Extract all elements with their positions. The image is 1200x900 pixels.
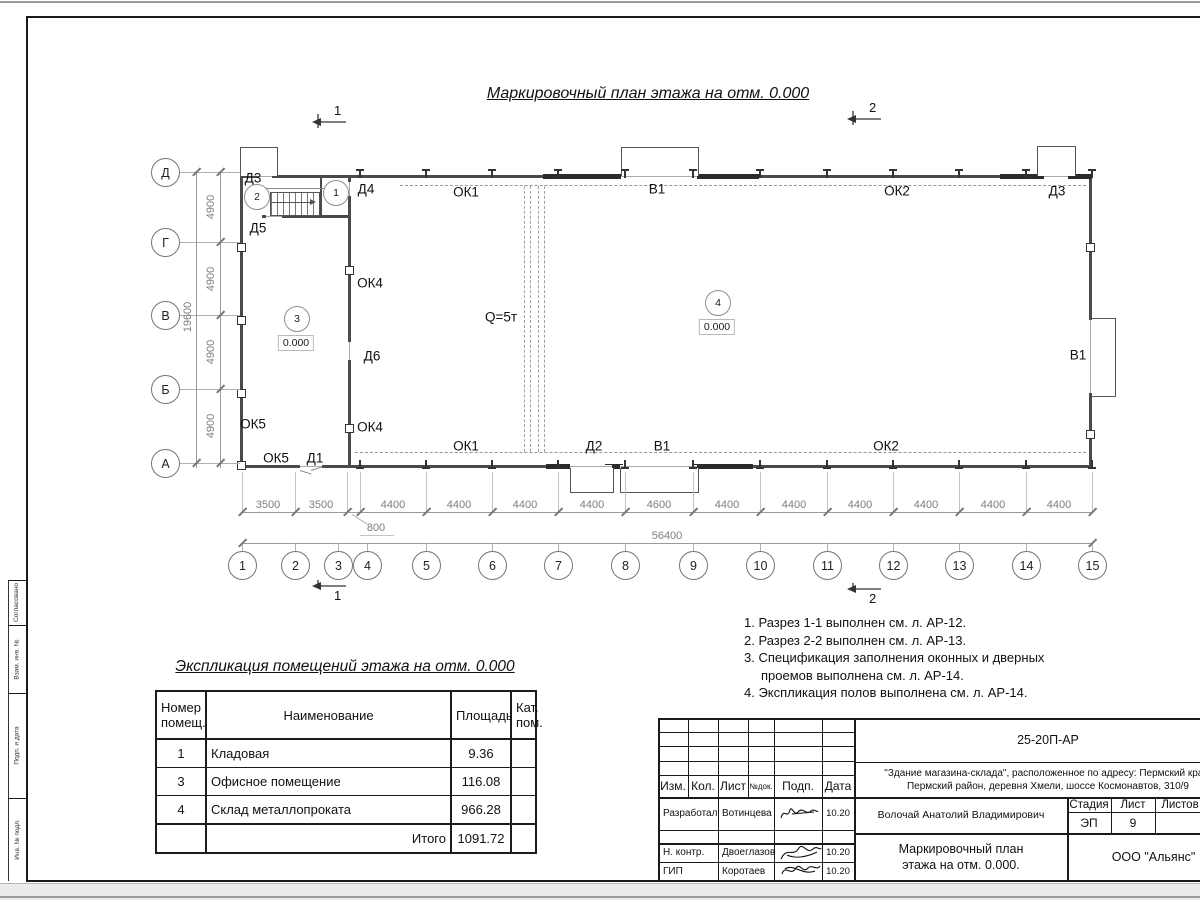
plan-label: В1	[654, 439, 671, 454]
bubble-leader-line	[1026, 543, 1027, 551]
note-line: 2. Разрез 2-2 выполнен см. л. АР-13.	[744, 632, 1066, 650]
room-marker: 4	[705, 290, 731, 316]
stage-header: Стадия	[1067, 797, 1111, 812]
plan-label: ОК5	[240, 417, 266, 432]
col-axis-bubble: 15	[1078, 551, 1107, 580]
plan-label: Д4	[358, 182, 375, 197]
stage-value: ЭП	[1067, 812, 1111, 833]
wall-tick	[1025, 170, 1027, 178]
stair-walk-arrow	[310, 199, 316, 205]
opening-sill-line	[349, 182, 350, 196]
axis-extension-line	[760, 472, 761, 512]
explication-header-row: Номер помещ.НаименованиеПлощадьКат. пом.	[156, 691, 536, 739]
room-name: Кладовая	[206, 739, 451, 768]
role-date: 10.20	[822, 843, 854, 862]
wall-tick	[1091, 170, 1093, 178]
frame-strip-label: Инв. № подл.	[8, 798, 26, 880]
wall-tick	[1022, 169, 1030, 171]
wall-lintel	[697, 174, 759, 179]
drawing-name-line1: Маркировочный план	[899, 841, 1024, 857]
col-axis-bubble: 13	[945, 551, 974, 580]
room-cat	[511, 796, 536, 825]
row-axis-bubble: Б	[151, 375, 180, 404]
dim-label: 4400	[447, 499, 471, 511]
room-cat	[511, 739, 536, 768]
opening-sill-line	[570, 466, 612, 467]
titleblock-header-col: Кол.	[688, 775, 718, 797]
section-arrow-icon	[845, 103, 889, 133]
bubble-leader-line	[492, 543, 493, 551]
dim-line-h	[242, 512, 1092, 513]
stair-walk-line	[272, 202, 312, 203]
bubble-leader-line	[893, 543, 894, 551]
room-name: Склад металлопроката	[206, 796, 451, 825]
opening-sill-line	[620, 466, 697, 467]
frame-strip-label: Взам. инв. №	[8, 625, 26, 693]
role-title: ГИП	[660, 862, 721, 880]
axis-extension-line	[893, 472, 894, 512]
col-axis-bubble: 11	[813, 551, 842, 580]
bubble-leader-line	[760, 543, 761, 551]
crane-rail-dashed-line	[538, 186, 539, 452]
wall-tick	[356, 169, 364, 171]
titleblock-header-col: Изм.	[658, 775, 688, 797]
dim-label: 3500	[256, 499, 280, 511]
col-axis-bubble: 1	[228, 551, 257, 580]
col-axis-bubble: 7	[544, 551, 573, 580]
window-mark	[345, 266, 354, 275]
section-mark: 1	[310, 106, 354, 136]
opening-sill-line	[266, 216, 282, 217]
wall-tick	[488, 467, 496, 469]
wall-tick	[621, 467, 629, 469]
wall-tick	[359, 170, 361, 178]
col-axis-bubble: 10	[746, 551, 775, 580]
object-name-line1: "Здание магазина-склада", расположенное …	[884, 767, 1200, 780]
dim-label: 4400	[580, 499, 604, 511]
sheet-bottom-edge	[0, 896, 1200, 898]
frame-strip-label-text: Взам. инв. №	[14, 639, 21, 679]
bubble-leader-line	[367, 543, 368, 551]
elevation-box: 0.000	[278, 335, 314, 351]
opening-sill-line	[621, 176, 697, 177]
bubble-leader-line	[959, 543, 960, 551]
wall-tick	[823, 169, 831, 171]
row-axis-bubble: Г	[151, 228, 180, 257]
room-cat	[511, 768, 536, 796]
dim-label: 4400	[981, 499, 1005, 511]
row-axis-bubble: В	[151, 301, 180, 330]
section-mark: 1	[310, 572, 354, 602]
window-mark	[237, 316, 246, 325]
wall-lintel	[693, 464, 753, 469]
sheet-top-edge	[0, 1, 1200, 3]
role-name: Коротаев	[719, 862, 777, 880]
axis-extension-line	[295, 472, 296, 512]
section-arrow-icon	[310, 106, 354, 136]
frame-left	[26, 16, 28, 882]
axis-extension-line	[625, 472, 626, 512]
crane-rail-dashed-line	[530, 186, 531, 452]
drawing-name: Маркировочный план этажа на отм. 0.000.	[856, 833, 1066, 880]
dim-offset-label: 800	[367, 522, 385, 534]
axis-extension-line	[558, 472, 559, 512]
plan-label: Д5	[250, 221, 267, 236]
table-row: 1Кладовая9.36	[156, 739, 536, 768]
col-axis-bubble: 14	[1012, 551, 1041, 580]
plan-label: В1	[649, 182, 666, 197]
wall-lintel	[543, 174, 621, 179]
plan-label: ОК2	[884, 184, 910, 199]
frame-strip-label: Подп. и дата	[8, 693, 26, 798]
explication-column-header: Площадь	[451, 691, 511, 739]
bubble-leader-line	[693, 543, 694, 551]
sheet-header: Лист	[1111, 797, 1155, 812]
elevation-box: 0.000	[699, 319, 735, 335]
frame-strip-label-text: Согласовано	[14, 583, 21, 622]
plan-label: ОК1	[453, 439, 479, 454]
plan-label: Д6	[364, 349, 381, 364]
annex-outline	[1037, 146, 1076, 176]
room-name: Офисное помещение	[206, 768, 451, 796]
annex-outline	[620, 468, 699, 493]
notes-list: 1. Разрез 1-1 выполнен см. л. АР-12.2. Р…	[744, 614, 1066, 702]
wall-tick	[422, 169, 430, 171]
titleblock-line	[658, 830, 854, 831]
explication-column-header: Номер помещ.	[156, 691, 206, 739]
sheets-header: Листов	[1155, 797, 1200, 812]
titleblock-header-col: Лист	[718, 775, 748, 797]
dim-label: 4400	[715, 499, 739, 511]
window-mark	[1086, 430, 1095, 439]
dim-leader-line	[352, 514, 368, 524]
role-date: 10.20	[822, 797, 854, 830]
frame-strip-label: Согласовано	[8, 580, 26, 625]
explication-table: Номер помещ.НаименованиеПлощадьКат. пом.…	[155, 690, 537, 854]
object-name: "Здание магазина-склада", расположенное …	[856, 762, 1200, 797]
window-mark	[1086, 243, 1095, 252]
total-row: Итого 1091.72	[156, 824, 536, 853]
annex-outline	[1092, 318, 1116, 397]
wall-tick	[422, 467, 430, 469]
axis-extension-line	[180, 242, 240, 243]
col-axis-bubble: 6	[478, 551, 507, 580]
room-marker: 3	[284, 306, 310, 332]
wall-tick	[689, 169, 697, 171]
plan-label: Д3	[1049, 184, 1066, 199]
wall-tick	[621, 169, 629, 171]
plan-label: Д2	[586, 439, 603, 454]
note-line: 4. Экспликация полов выполнена см. л. АР…	[744, 684, 1066, 702]
dim-label: 4400	[381, 499, 405, 511]
col-axis-bubble: 2	[281, 551, 310, 580]
axis-extension-line	[180, 389, 240, 390]
wall-tick	[557, 170, 559, 178]
wall-tick	[554, 169, 562, 171]
total-label: Итого	[206, 824, 451, 853]
sheet-number: 9	[1111, 812, 1155, 833]
wall-tick	[823, 467, 831, 469]
plan-title: Маркировочный план этажа на отм. 0.000	[448, 85, 848, 103]
wall-tick	[1088, 169, 1096, 171]
wall-tick	[756, 467, 764, 469]
wall	[348, 178, 351, 465]
axis-extension-line	[492, 472, 493, 512]
door-leaf	[300, 470, 312, 475]
dim-label: 4900	[205, 340, 217, 364]
plan-label: ОК4	[357, 420, 383, 435]
room-num: 4	[156, 796, 206, 825]
wall-tick	[692, 170, 694, 178]
total-empty	[156, 824, 206, 853]
section-mark: 2	[845, 575, 889, 605]
window-mark	[237, 389, 246, 398]
dim-label: 4400	[848, 499, 872, 511]
dim-label: 4400	[914, 499, 938, 511]
opening-sill-line	[349, 342, 350, 360]
bubble-leader-line	[827, 543, 828, 551]
col-axis-bubble: 8	[611, 551, 640, 580]
dim-line-v	[220, 172, 221, 468]
bubble-leader-line	[242, 543, 243, 551]
explication-title: Экспликация помещений этажа на отм. 0.00…	[155, 658, 535, 676]
plan-label: ОК4	[357, 276, 383, 291]
row-axis-bubble: Д	[151, 158, 180, 187]
explication-column-header: Наименование	[206, 691, 451, 739]
note-line: 1. Разрез 1-1 выполнен см. л. АР-12.	[744, 614, 1066, 632]
role-date: 10.20	[822, 862, 854, 880]
col-axis-bubble: 4	[353, 551, 382, 580]
dim-label: 4900	[205, 267, 217, 291]
wall-tick	[955, 169, 963, 171]
axis-extension-line	[180, 463, 240, 464]
plan-label: ОК2	[873, 439, 899, 454]
wall-tick	[759, 170, 761, 178]
plan-label: Д1	[307, 451, 324, 466]
plan-label: Q=5т	[485, 310, 517, 325]
annex-outline	[570, 468, 614, 493]
bubble-leader-line	[1092, 543, 1093, 551]
drawing-name-line2: этажа на отм. 0.000.	[902, 857, 1019, 873]
row-axis-bubble: А	[151, 449, 180, 478]
note-line: 3. Спецификация заполнения оконных и две…	[744, 649, 1066, 684]
dim-total-label: 56400	[652, 530, 683, 542]
role-name: Вотинцева	[719, 797, 777, 830]
wall-tick	[892, 170, 894, 178]
wall-tick	[1022, 467, 1030, 469]
axis-extension-line	[347, 472, 348, 512]
opening-sill-line	[1044, 176, 1068, 177]
frame-top	[26, 16, 1200, 18]
section-mark-number: 1	[334, 588, 341, 603]
opening-sill-line	[1090, 320, 1091, 393]
wall-tick	[955, 467, 963, 469]
section-mark-number: 2	[869, 591, 876, 606]
dim-label: 4900	[205, 195, 217, 219]
room-area: 966.28	[451, 796, 511, 825]
dim-label: 3500	[309, 499, 333, 511]
axis-extension-line	[1026, 472, 1027, 512]
axis-extension-line	[827, 472, 828, 512]
section-mark-number: 2	[869, 100, 876, 115]
interior-dashed-line	[400, 185, 1086, 186]
axis-extension-line	[1092, 472, 1093, 512]
explication-section: Экспликация помещений этажа на отм. 0.00…	[155, 658, 535, 854]
wall-tick	[889, 467, 897, 469]
window-mark	[345, 424, 354, 433]
role-name: Двоеглазов	[719, 843, 777, 862]
section-arrow-icon	[845, 575, 889, 605]
table-row: 3Офисное помещение116.08	[156, 768, 536, 796]
explication-column-header: Кат. пом.	[511, 691, 536, 739]
signature-korotaev	[777, 860, 823, 879]
dim-line-h	[242, 543, 1092, 544]
axis-extension-line	[426, 472, 427, 512]
dim-line-v	[196, 172, 197, 468]
total-value: 1091.72	[451, 824, 511, 853]
titleblock-header-col: Дата	[822, 775, 854, 797]
wall-tick	[425, 170, 427, 178]
room-marker: 1	[323, 180, 349, 206]
table-row: 4Склад металлопроката966.28	[156, 796, 536, 825]
axis-extension-line	[959, 472, 960, 512]
doc-number: 25-20П-АР	[856, 718, 1200, 762]
person-name: Волочай Анатолий Владимирович	[856, 797, 1066, 833]
wall-tick	[826, 170, 828, 178]
bubble-leader-line	[558, 543, 559, 551]
room-marker: 2	[244, 184, 270, 210]
axis-extension-line	[180, 172, 240, 173]
axis-extension-line	[693, 472, 694, 512]
annex-outline	[621, 147, 699, 176]
room-num: 1	[156, 739, 206, 768]
wall-tick	[689, 467, 697, 469]
frame-strip-label-text: Инв. № подл.	[14, 819, 21, 860]
wall-tick	[491, 170, 493, 178]
company-name: ООО "Альянс"	[1067, 833, 1200, 880]
room-num: 3	[156, 768, 206, 796]
bubble-leader-line	[338, 543, 339, 551]
dim-total-label: 19600	[182, 302, 194, 333]
drawing-sheet: СогласованоВзам. инв. №Подп. и датаИнв. …	[0, 0, 1200, 900]
frame-bottom	[26, 880, 1200, 882]
col-axis-bubble: 9	[679, 551, 708, 580]
dim-label: 4900	[205, 414, 217, 438]
bubble-leader-line	[625, 543, 626, 551]
plan-label: В1	[1070, 348, 1087, 363]
col-axis-bubble: 5	[412, 551, 441, 580]
object-name-line2: Пермский район, деревня Хмели, шоссе Кос…	[907, 780, 1189, 793]
bubble-leader-line	[426, 543, 427, 551]
window-mark	[237, 243, 246, 252]
dim-label: 4400	[1047, 499, 1071, 511]
dim-label: 4400	[782, 499, 806, 511]
dim-label: 4600	[647, 499, 671, 511]
axis-extension-line	[242, 472, 243, 512]
titleblock-header-col: Подп.	[774, 775, 822, 797]
section-mark-number: 1	[334, 103, 341, 118]
wall-tick	[554, 467, 562, 469]
room-area: 9.36	[451, 739, 511, 768]
titleblock-header-col: №док.	[748, 775, 774, 797]
wall-tick	[356, 467, 364, 469]
wall-tick	[889, 169, 897, 171]
crane-rail-dashed-line	[524, 186, 525, 452]
bubble-leader-line	[295, 543, 296, 551]
section-arrow-icon	[310, 572, 354, 602]
wall	[320, 175, 322, 217]
crane-rail-dashed-line	[544, 186, 545, 452]
dim-underline	[360, 535, 394, 536]
wall-tick	[488, 169, 496, 171]
wall-tick	[1088, 467, 1096, 469]
dim-label: 4400	[513, 499, 537, 511]
plan-label: ОК5	[263, 451, 289, 466]
plan-label: ОК1	[453, 185, 479, 200]
wall-tick	[624, 170, 626, 178]
section-mark: 2	[845, 103, 889, 133]
wall-tick	[756, 169, 764, 171]
signature-votintseva	[778, 803, 820, 825]
room-area: 116.08	[451, 768, 511, 796]
total-cat-empty	[511, 824, 536, 853]
role-title: Разработал	[660, 797, 721, 830]
role-title: Н. контр.	[660, 843, 721, 862]
frame-strip-label-text: Подп. и дата	[14, 726, 21, 764]
axis-extension-line	[360, 472, 361, 512]
wall-tick	[958, 170, 960, 178]
